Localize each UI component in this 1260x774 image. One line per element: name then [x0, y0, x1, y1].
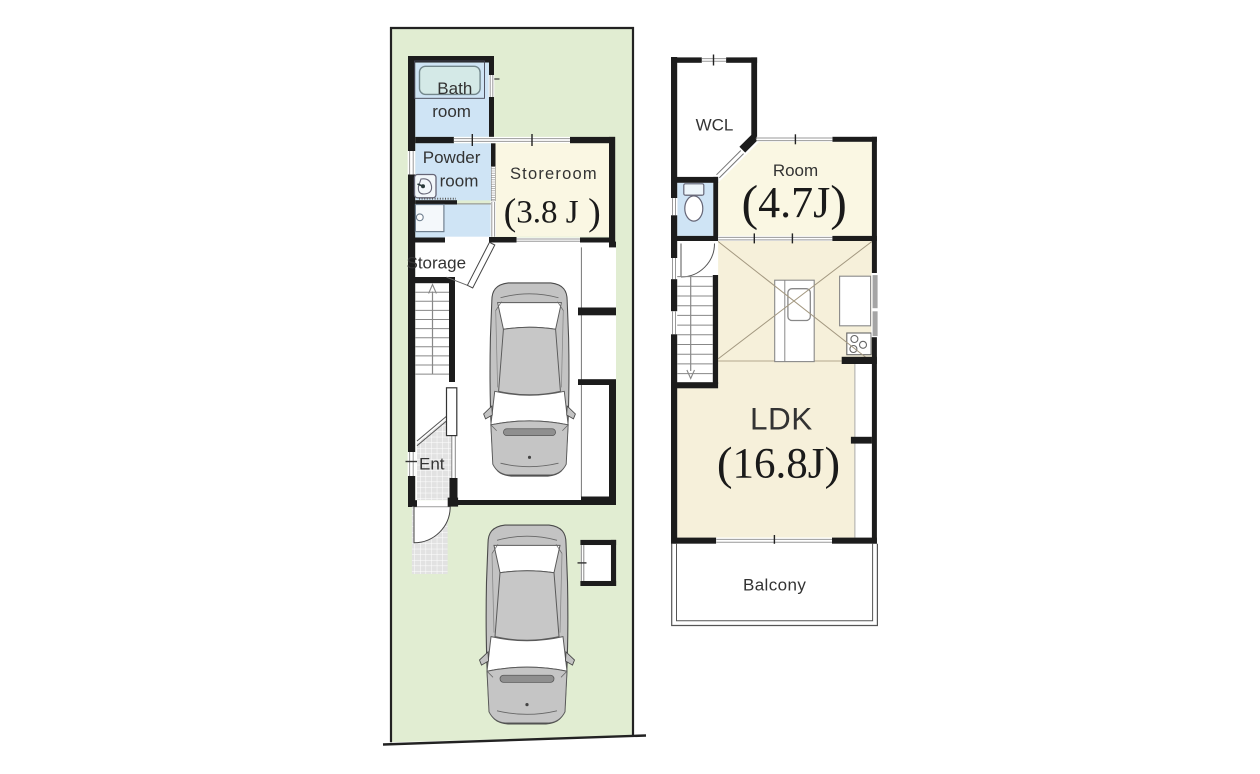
svg-text:Balcony: Balcony	[743, 575, 806, 594]
svg-text:Storage: Storage	[407, 254, 467, 273]
svg-text:(16.8J): (16.8J)	[717, 438, 840, 490]
svg-text:Storeroom: Storeroom	[510, 165, 598, 183]
svg-text:Bath: Bath	[437, 79, 472, 98]
svg-text:(4.7J): (4.7J)	[741, 175, 846, 231]
svg-text:room: room	[440, 171, 479, 190]
svg-text:WCL: WCL	[696, 116, 734, 135]
svg-text:room: room	[432, 102, 471, 121]
svg-text:Ent: Ent	[419, 454, 445, 473]
svg-text:Powder: Powder	[423, 148, 481, 167]
svg-text:(3.8 J ): (3.8 J )	[504, 191, 601, 233]
svg-text:LDK: LDK	[750, 400, 813, 436]
